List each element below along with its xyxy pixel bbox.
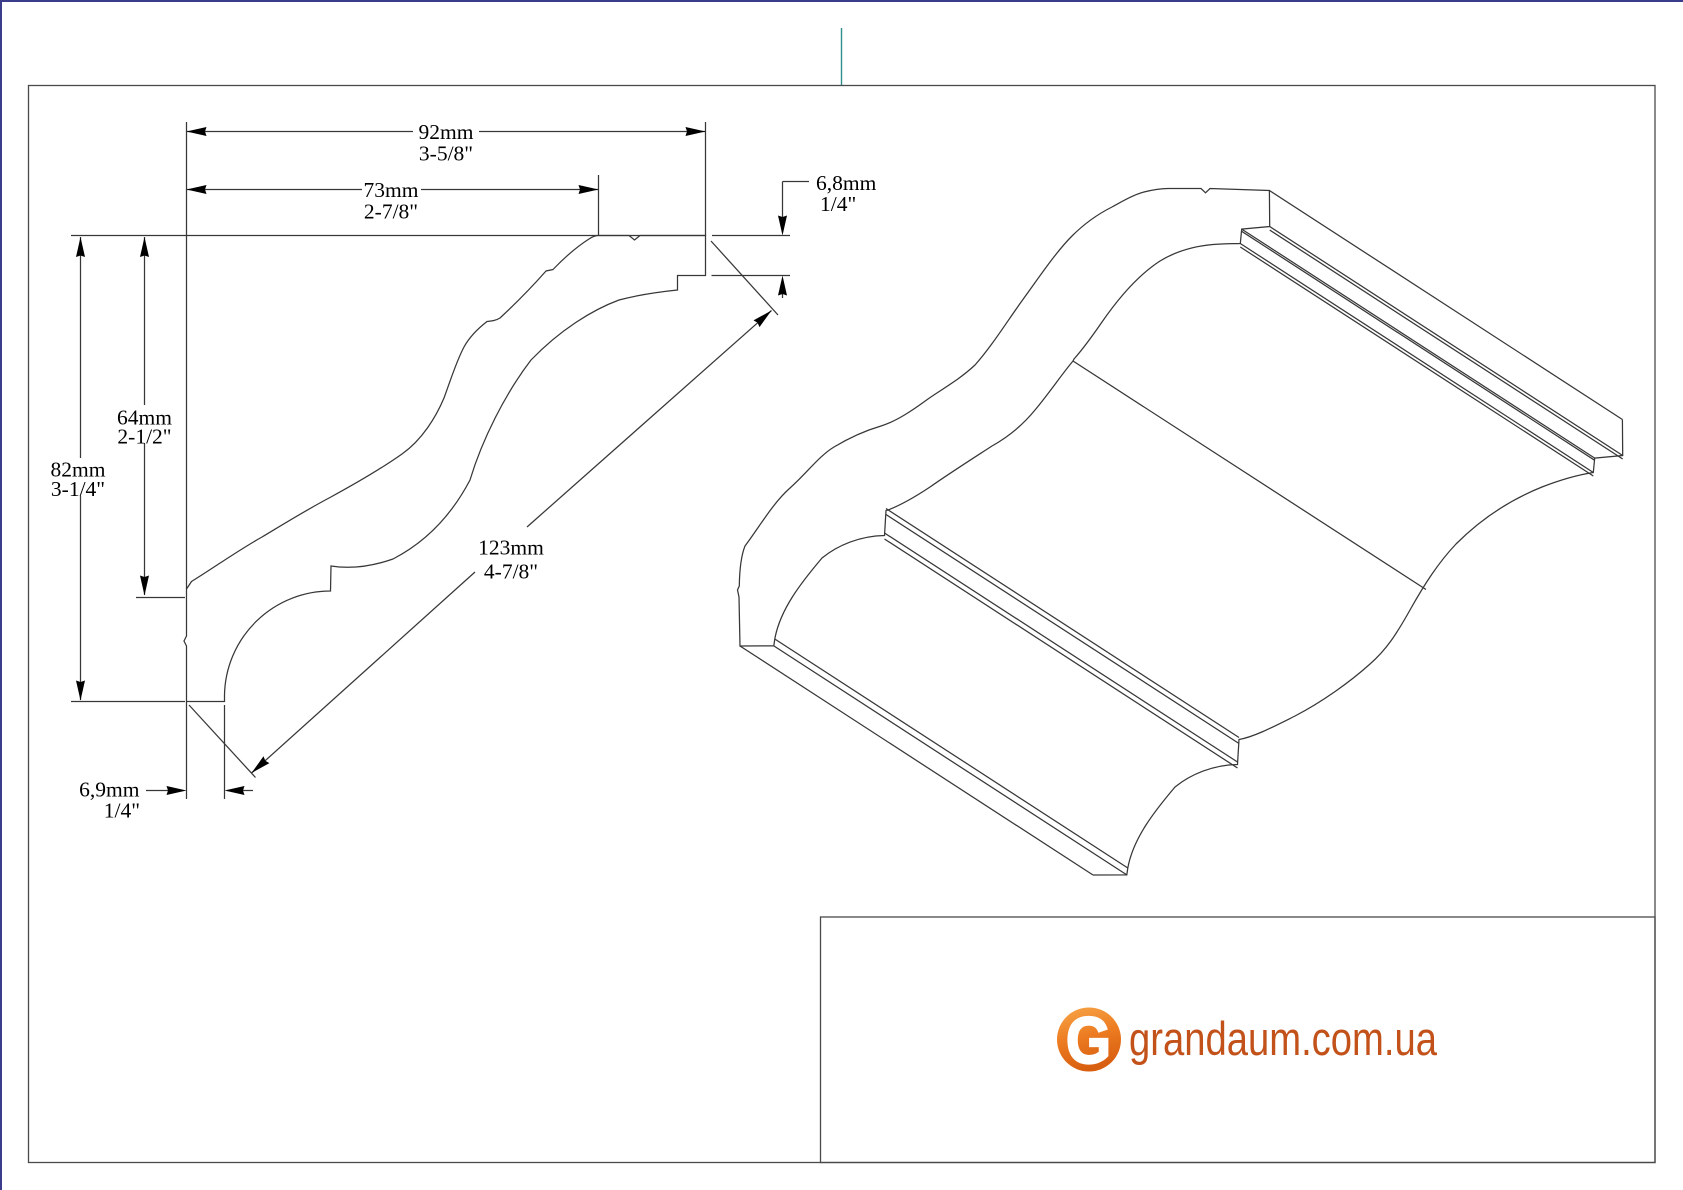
svg-text:1/4": 1/4"	[820, 192, 856, 216]
svg-text:grandaum.com.ua: grandaum.com.ua	[1129, 1012, 1438, 1065]
svg-text:2-1/2": 2-1/2"	[117, 424, 171, 448]
svg-text:4-7/8": 4-7/8"	[484, 559, 538, 583]
svg-text:123mm: 123mm	[478, 535, 544, 559]
svg-text:3-1/4": 3-1/4"	[51, 477, 105, 501]
svg-text:G: G	[1066, 1003, 1111, 1077]
svg-text:1/4": 1/4"	[104, 799, 140, 823]
svg-text:3-5/8": 3-5/8"	[419, 141, 473, 165]
svg-text:2-7/8": 2-7/8"	[364, 199, 418, 223]
svg-text:73mm: 73mm	[364, 178, 419, 202]
svg-text:92mm: 92mm	[419, 120, 474, 144]
